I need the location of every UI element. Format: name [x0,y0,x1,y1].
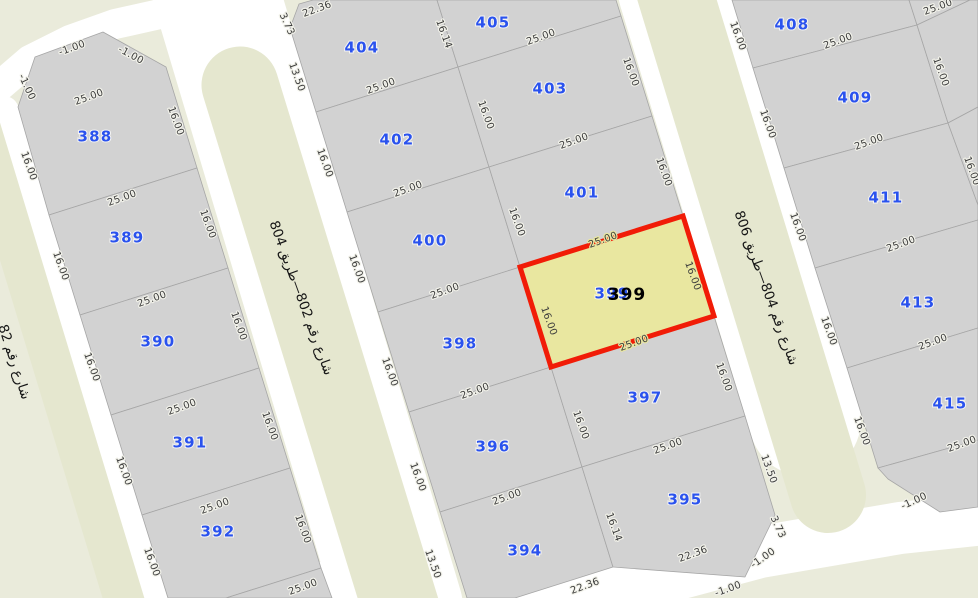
map-viewport: -1.00-1.00-1.0025.0016.0016.0025.0016.00… [0,0,978,598]
cadastral-map-canvas[interactable]: -1.00-1.00-1.0025.0016.0016.0025.0016.00… [0,0,978,598]
parcel-number-395: 395 [668,491,703,509]
parcel-number-400: 400 [413,232,448,250]
parcel-number-388: 388 [78,128,113,146]
parcel-number-415: 415 [933,395,968,413]
parcel-number-398: 398 [443,335,478,353]
parcel-number-390: 390 [141,333,176,351]
parcel-number-392: 392 [201,523,236,541]
parcel-number-389: 389 [110,229,145,247]
parcel-number-413: 413 [901,294,936,312]
parcel-number-411: 411 [869,189,904,207]
parcel-number-394: 394 [508,542,543,560]
parcel-number-401: 401 [565,184,600,202]
parcel-number-408: 408 [775,16,810,34]
highlighted-parcel-number: 399 [608,285,647,305]
parcel-number-402: 402 [380,131,415,149]
parcel-number-396: 396 [476,438,511,456]
parcel-number-403: 403 [533,80,568,98]
parcel-number-409: 409 [838,89,873,107]
parcel-number-405: 405 [476,14,511,32]
parcel-number-397: 397 [628,389,663,407]
parcel-number-404: 404 [345,39,380,57]
parcel-number-391: 391 [173,434,208,452]
